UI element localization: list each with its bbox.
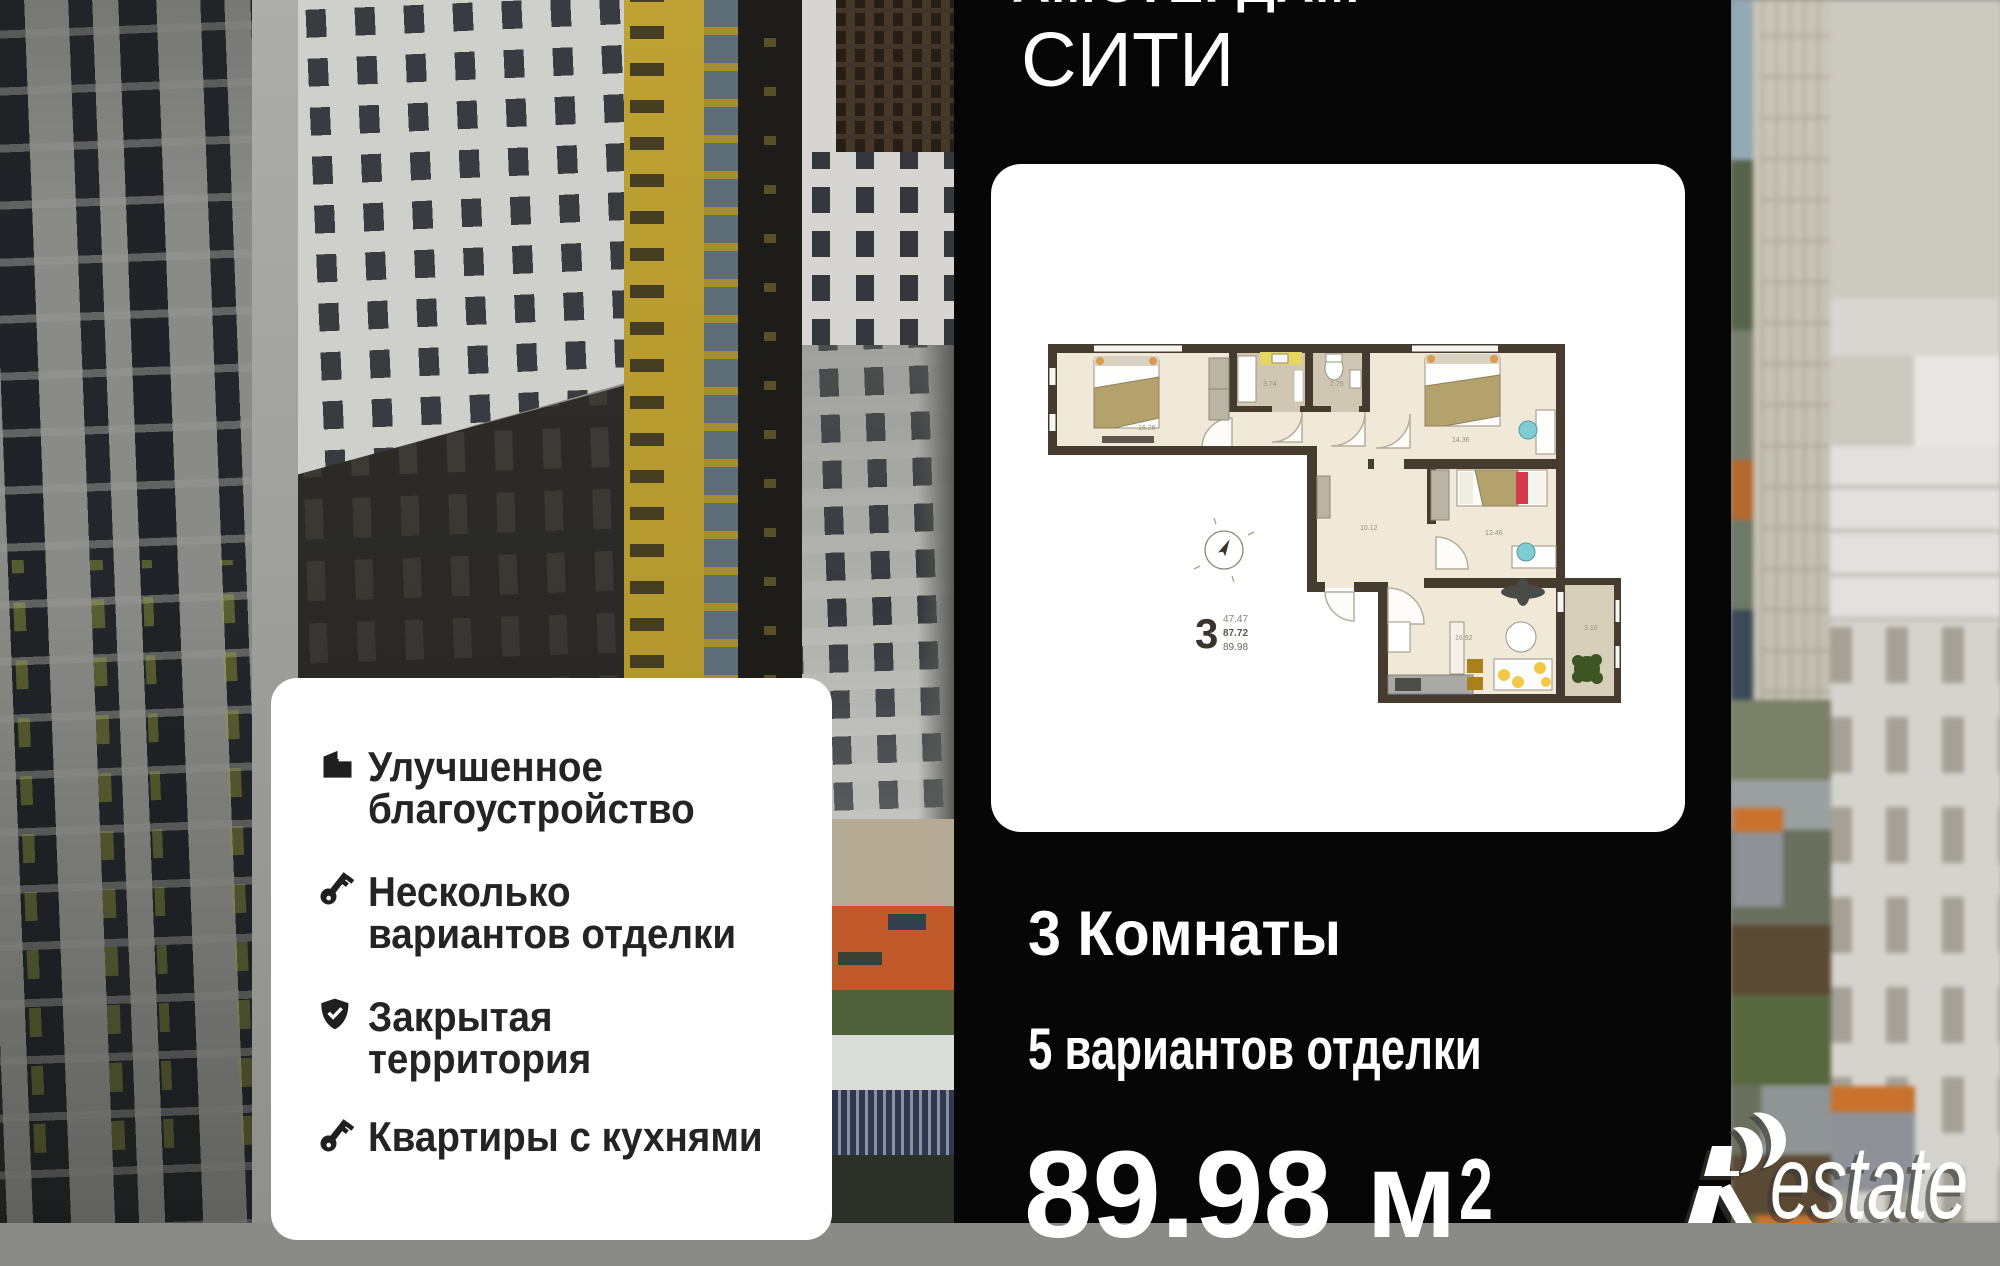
svg-text:14.36: 14.36 [1452, 437, 1470, 444]
svg-text:10.12: 10.12 [1360, 525, 1378, 532]
svg-text:3.10: 3.10 [1584, 625, 1598, 632]
svg-text:3.74: 3.74 [1263, 381, 1277, 388]
svg-text:87.72: 87.72 [1223, 628, 1248, 639]
svg-text:89.98: 89.98 [1223, 642, 1248, 653]
svg-text:12.46: 12.46 [1485, 530, 1503, 537]
svg-text:estate: estate [1770, 1125, 1968, 1223]
svg-text:47.47: 47.47 [1223, 614, 1248, 625]
svg-text:16.26: 16.26 [1138, 425, 1156, 432]
svg-text:2.75: 2.75 [1330, 381, 1344, 388]
svg-text:16.92: 16.92 [1455, 635, 1473, 642]
svg-text:3: 3 [1195, 610, 1218, 657]
